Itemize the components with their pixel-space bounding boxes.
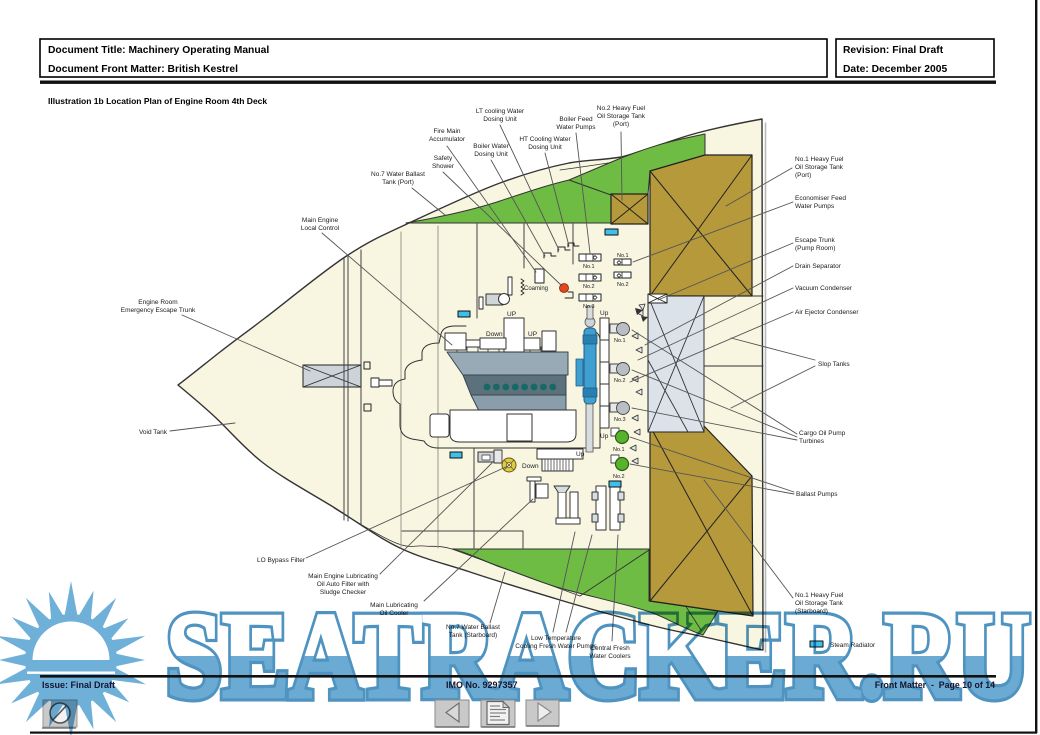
svg-text:No.2: No.2 [613, 474, 625, 480]
svg-text:Down: Down [486, 331, 503, 338]
svg-text:Document Front Matter: British: Document Front Matter: British Kestrel [48, 64, 238, 75]
svg-text:No.1: No.1 [614, 338, 626, 344]
svg-text:Up: Up [600, 310, 609, 317]
svg-text:Up: Up [600, 433, 609, 440]
svg-text:No.3: No.3 [614, 417, 626, 423]
svg-text:LO Bypass Filter: LO Bypass Filter [257, 557, 306, 564]
svg-text:Down: Down [522, 463, 539, 470]
svg-text:Boiler WaterDosing Unit: Boiler WaterDosing Unit [473, 143, 509, 158]
svg-text:Vacuum Condenser: Vacuum Condenser [795, 285, 853, 292]
svg-text:Revision: Final Draft: Revision: Final Draft [843, 45, 944, 56]
svg-text:Up: Up [576, 451, 585, 458]
svg-text:Air Ejector Condenser: Air Ejector Condenser [795, 309, 859, 316]
svg-text:No.2: No.2 [617, 282, 629, 288]
svg-text:No.2: No.2 [583, 284, 595, 290]
svg-text:Coaming: Coaming [524, 286, 548, 292]
svg-text:Issue: Final Draft: Issue: Final Draft [42, 680, 115, 690]
svg-text:Document Title: Machinery Oper: Document Title: Machinery Operating Manu… [48, 45, 269, 56]
svg-text:No.1: No.1 [617, 253, 629, 259]
svg-text:Escape Trunk(Pump Room): Escape Trunk(Pump Room) [795, 237, 835, 252]
svg-text:No.1: No.1 [613, 447, 625, 453]
svg-text:Drain Separator: Drain Separator [795, 263, 842, 270]
svg-text:Boiler FeedWater Pumps: Boiler FeedWater Pumps [556, 116, 596, 131]
svg-text:IMO No. 9297357: IMO No. 9297357 [446, 680, 518, 690]
svg-text:Void Tank: Void Tank [139, 429, 168, 436]
svg-text:No.3: No.3 [583, 304, 595, 310]
svg-text:Slop Tanks: Slop Tanks [818, 361, 850, 368]
svg-text:No.1: No.1 [583, 264, 595, 270]
svg-text:No.2: No.2 [614, 378, 626, 384]
svg-text:Front Matter - Page 10 of 14: Front Matter - Page 10 of 14 [875, 680, 995, 690]
svg-text:Illustration 1b Location Plan: Illustration 1b Location Plan of Engine … [48, 96, 267, 106]
svg-text:UP: UP [507, 311, 516, 318]
svg-text:Fire MainAccumulator: Fire MainAccumulator [429, 128, 466, 143]
svg-text:Main EngineLocal Control: Main EngineLocal Control [301, 217, 340, 232]
svg-text:UP: UP [528, 331, 537, 338]
svg-text:Date: December 2005: Date: December 2005 [843, 64, 947, 75]
svg-text:SafetyShower: SafetyShower [432, 155, 455, 170]
svg-text:Ballast Pumps: Ballast Pumps [796, 491, 838, 498]
